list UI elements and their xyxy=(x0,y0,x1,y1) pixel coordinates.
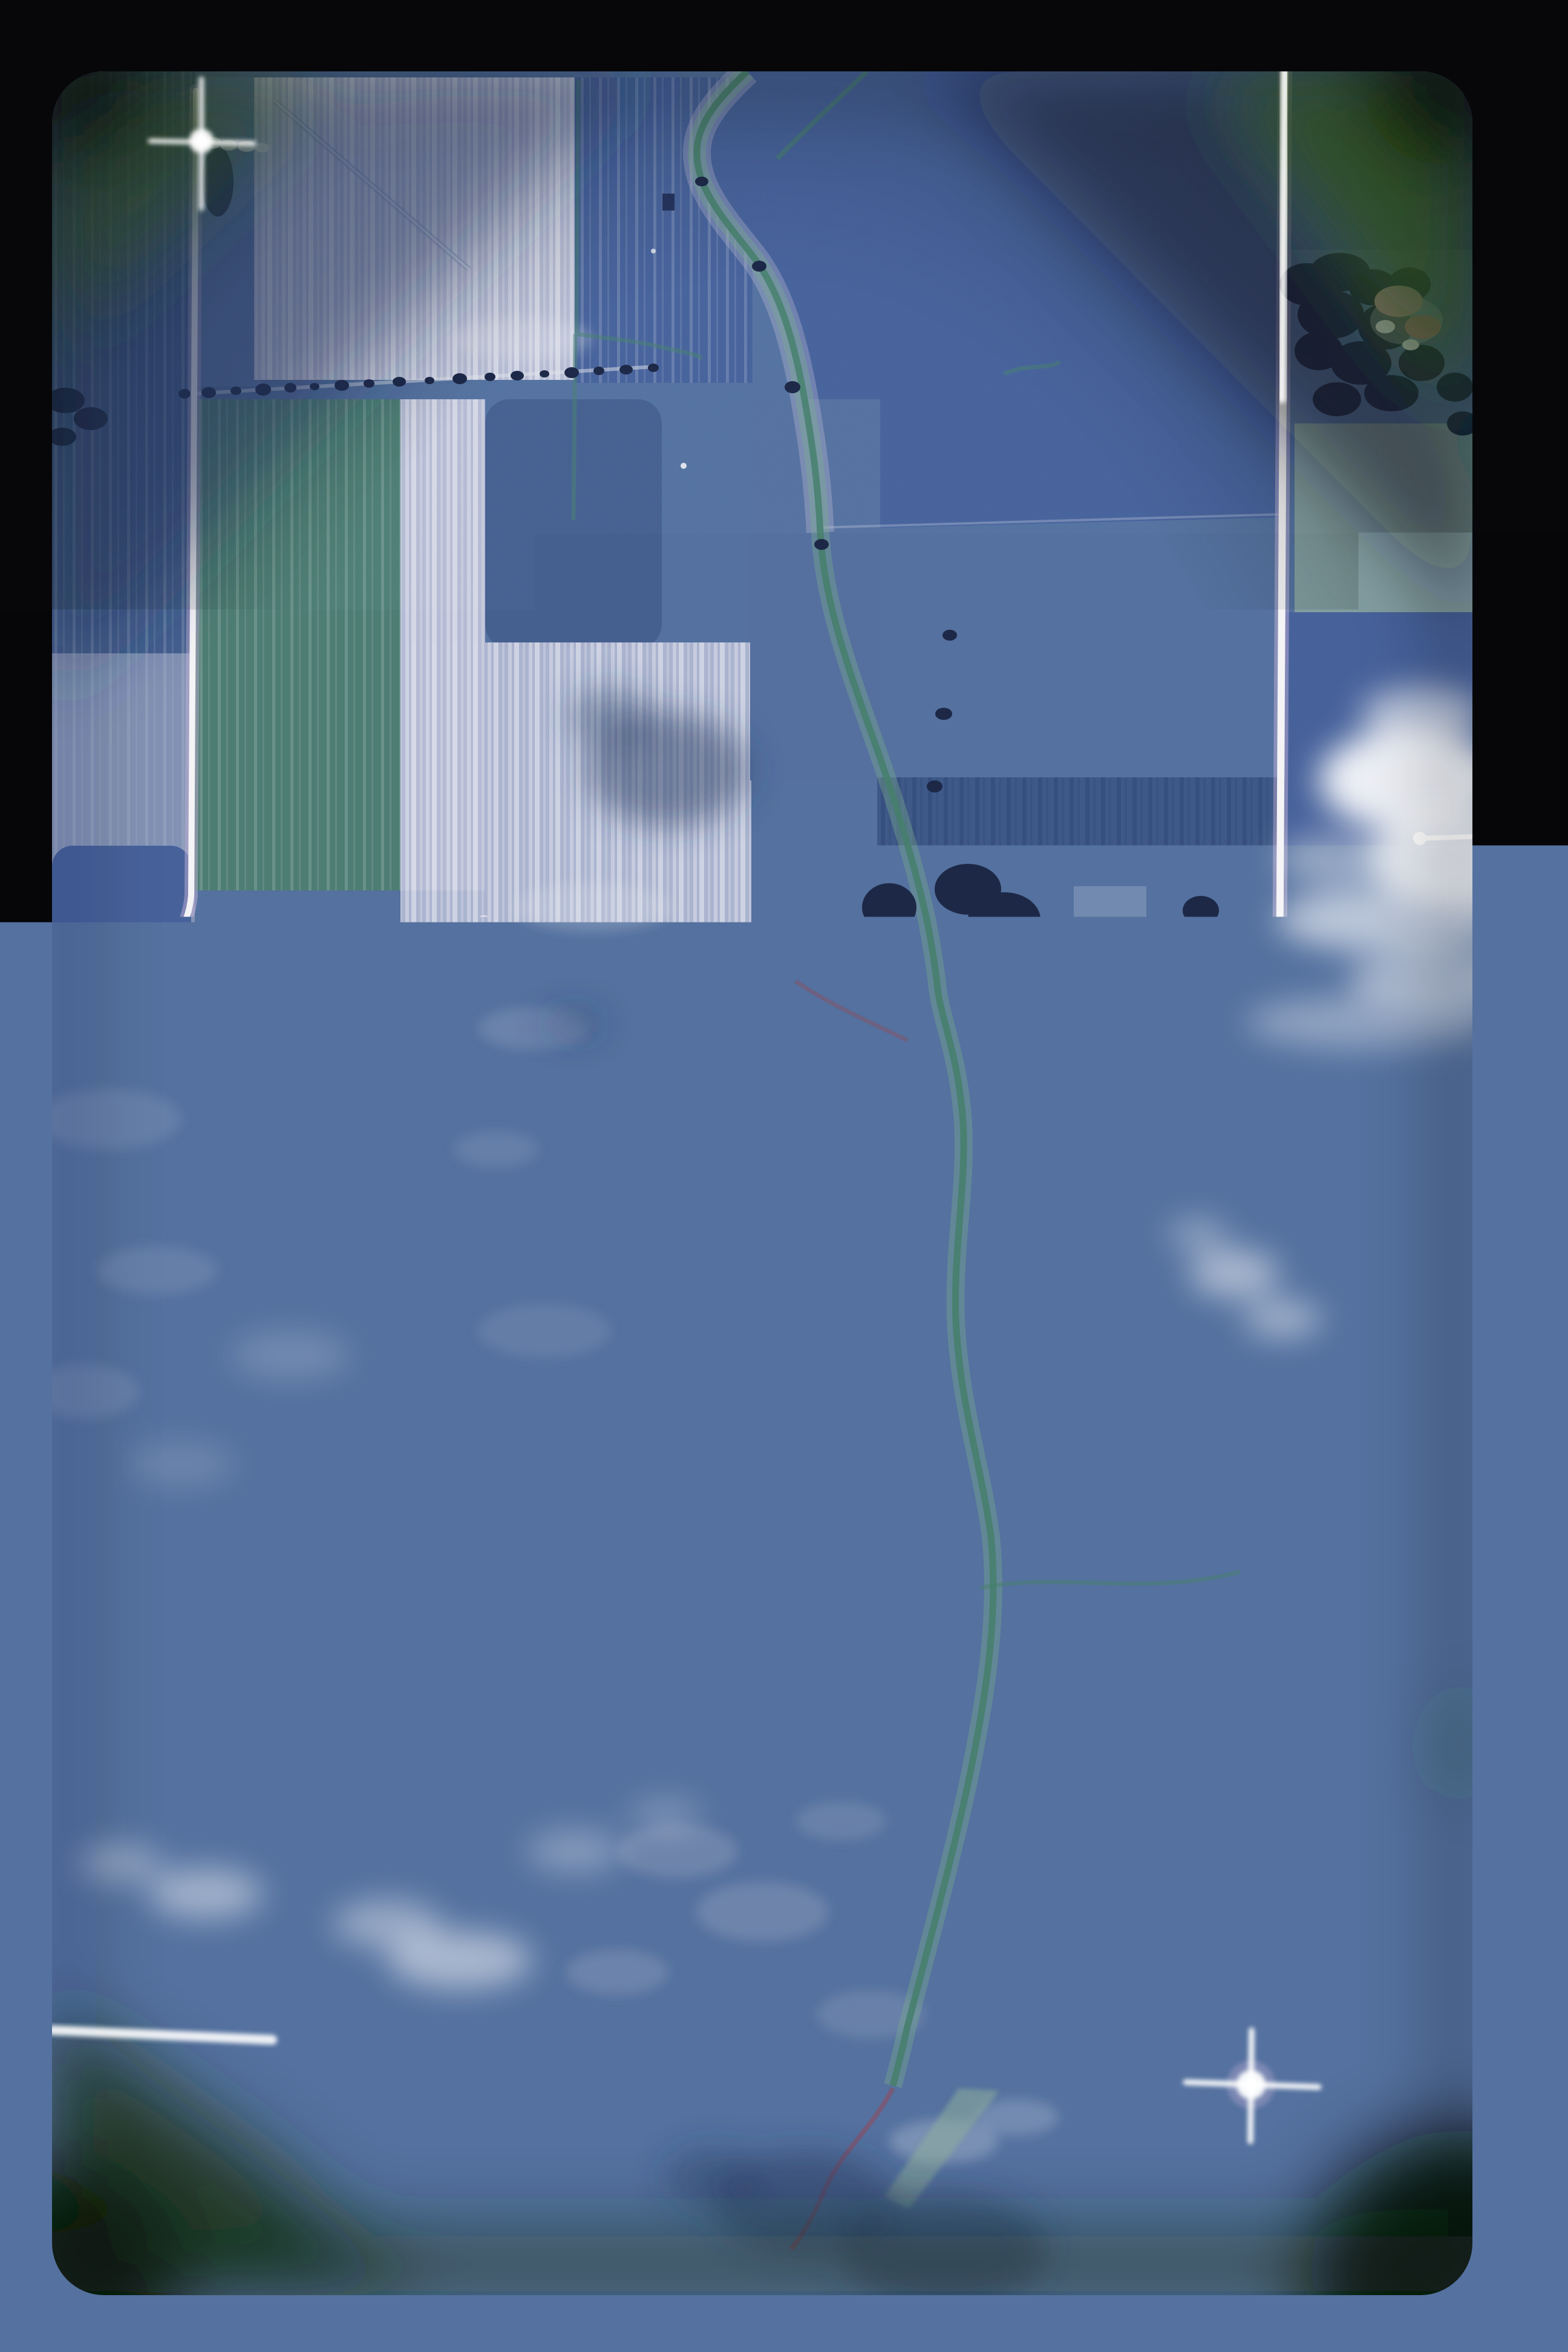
film-grain xyxy=(0,0,1568,2352)
aerial-photo-slide xyxy=(0,0,1568,2352)
photo-canvas xyxy=(0,0,1568,2352)
